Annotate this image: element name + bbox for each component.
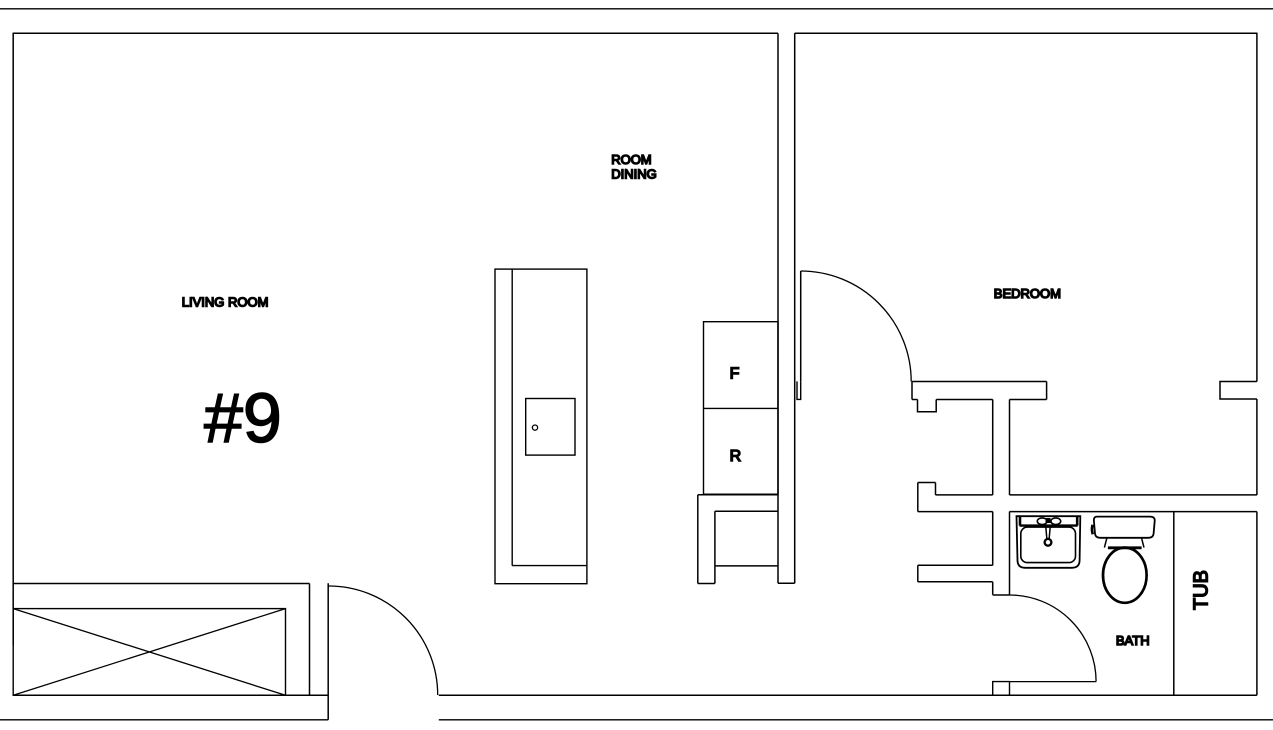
svg-text:BEDROOM: BEDROOM	[994, 286, 1061, 301]
svg-text:ROOMDINING: ROOMDINING	[611, 152, 657, 182]
svg-text:F: F	[730, 365, 740, 382]
svg-text:#9: #9	[204, 379, 282, 457]
svg-text:TUB: TUB	[1191, 570, 1213, 610]
svg-text:R: R	[730, 448, 742, 465]
svg-text:BATH: BATH	[1116, 633, 1150, 648]
svg-text:LIVING ROOM: LIVING ROOM	[182, 295, 269, 310]
